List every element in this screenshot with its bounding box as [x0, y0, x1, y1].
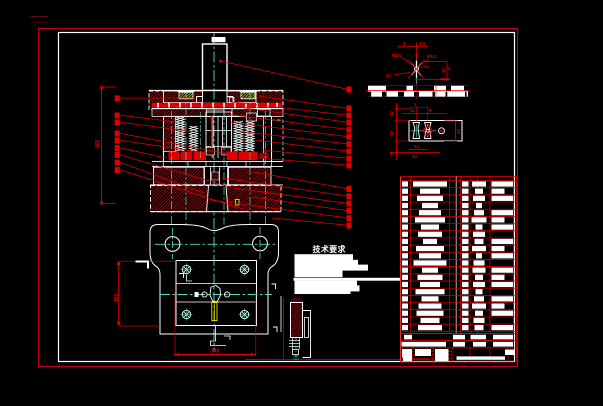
svg-text:12: 12 [410, 108, 415, 113]
svg-text:R8.2: R8.2 [427, 54, 437, 59]
svg-text:125: 125 [114, 294, 120, 303]
svg-text:22: 22 [389, 111, 394, 116]
svg-text:140: 140 [211, 349, 220, 355]
svg-text:30: 30 [412, 154, 417, 159]
svg-text:R2: R2 [386, 74, 392, 79]
svg-text:R1.5: R1.5 [392, 53, 402, 58]
svg-text:1.5: 1.5 [419, 41, 426, 46]
svg-text:20: 20 [456, 129, 461, 134]
svg-text:265: 265 [95, 139, 101, 148]
svg-text:10: 10 [441, 68, 446, 73]
svg-text:18: 18 [389, 131, 394, 136]
svg-text:10: 10 [414, 144, 419, 149]
svg-text:R3: R3 [424, 64, 430, 69]
svg-text:技术要求: 技术要求 [313, 244, 347, 254]
